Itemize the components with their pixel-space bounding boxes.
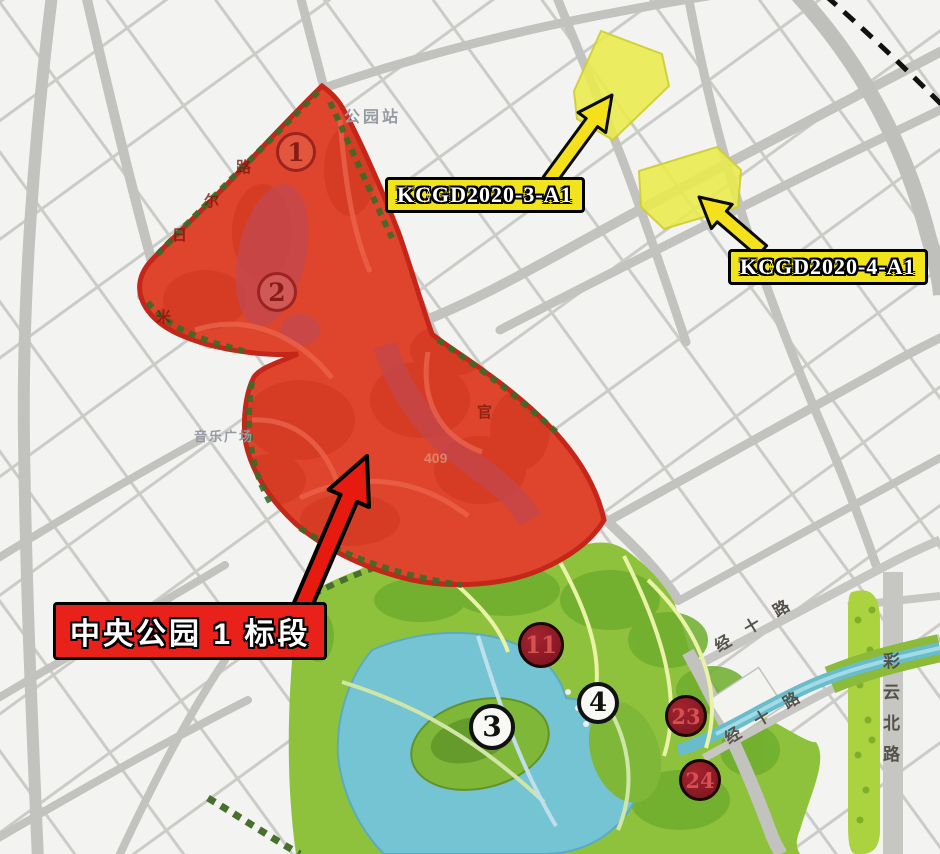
- faint-road-char-lu: 路: [236, 156, 251, 177]
- station-label-park: 公园站: [344, 103, 401, 127]
- marker-4: 4: [577, 682, 619, 724]
- marker-3: 3: [469, 704, 515, 750]
- marker-24: 24: [679, 759, 721, 801]
- marker-zone-1: 1: [276, 132, 316, 172]
- parcel-3-label: KCGD2020-3-A1: [385, 177, 585, 213]
- faint-road-char-ri: 日: [172, 224, 187, 245]
- parcel-4-label: KCGD2020-4-A1: [728, 249, 928, 285]
- marker-11: 11: [518, 622, 564, 668]
- faint-road-char-mi: 米: [156, 306, 171, 327]
- map-label-music-plaza: 音乐广场: [194, 426, 254, 445]
- planning-map: KCGD2020-3-A1 KCGD2020-4-A1 中央公园 1 标段 1 …: [0, 0, 940, 854]
- marker-zone-2: 2: [257, 272, 297, 312]
- faint-road-char-guan: 官: [477, 401, 492, 422]
- faint-road-char-er: 尔: [204, 190, 219, 211]
- marker-23: 23: [665, 695, 707, 737]
- park-section-label: 中央公园 1 标段: [53, 602, 327, 660]
- road-label-caiyun-north: 彩云北路: [877, 652, 902, 776]
- faint-number-409: 409: [424, 450, 447, 466]
